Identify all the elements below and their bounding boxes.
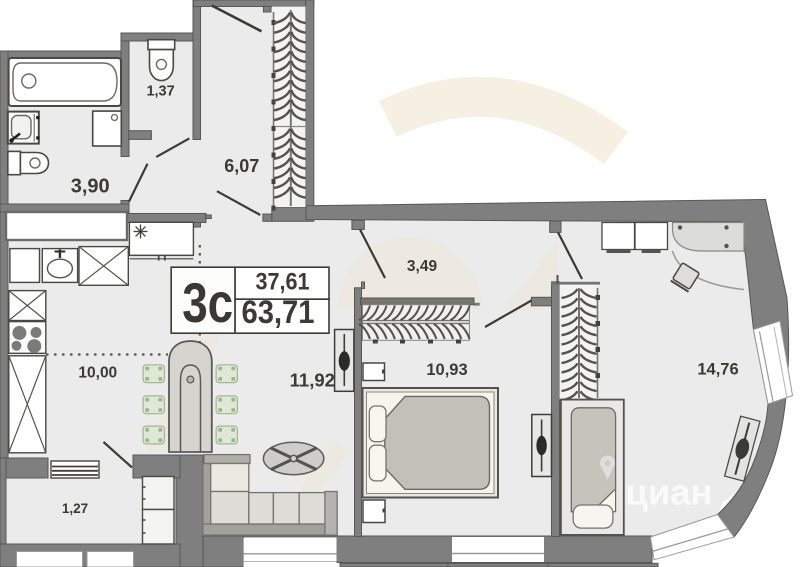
svg-text:3,49: 3,49	[407, 258, 438, 275]
svg-text:циан: циан	[625, 472, 712, 513]
svg-text:37,61: 37,61	[256, 269, 310, 296]
svg-text:6,07: 6,07	[224, 156, 259, 176]
svg-text:10,00: 10,00	[78, 365, 117, 382]
svg-text:10,93: 10,93	[426, 361, 467, 379]
svg-text:63,71: 63,71	[242, 294, 315, 330]
svg-text:11,92: 11,92	[290, 369, 335, 390]
svg-text:14,76: 14,76	[697, 361, 738, 379]
svg-text:1,37: 1,37	[146, 84, 174, 100]
svg-text:3,90: 3,90	[71, 176, 110, 198]
svg-text:3с: 3с	[182, 271, 233, 334]
svg-text:1,27: 1,27	[62, 501, 88, 516]
